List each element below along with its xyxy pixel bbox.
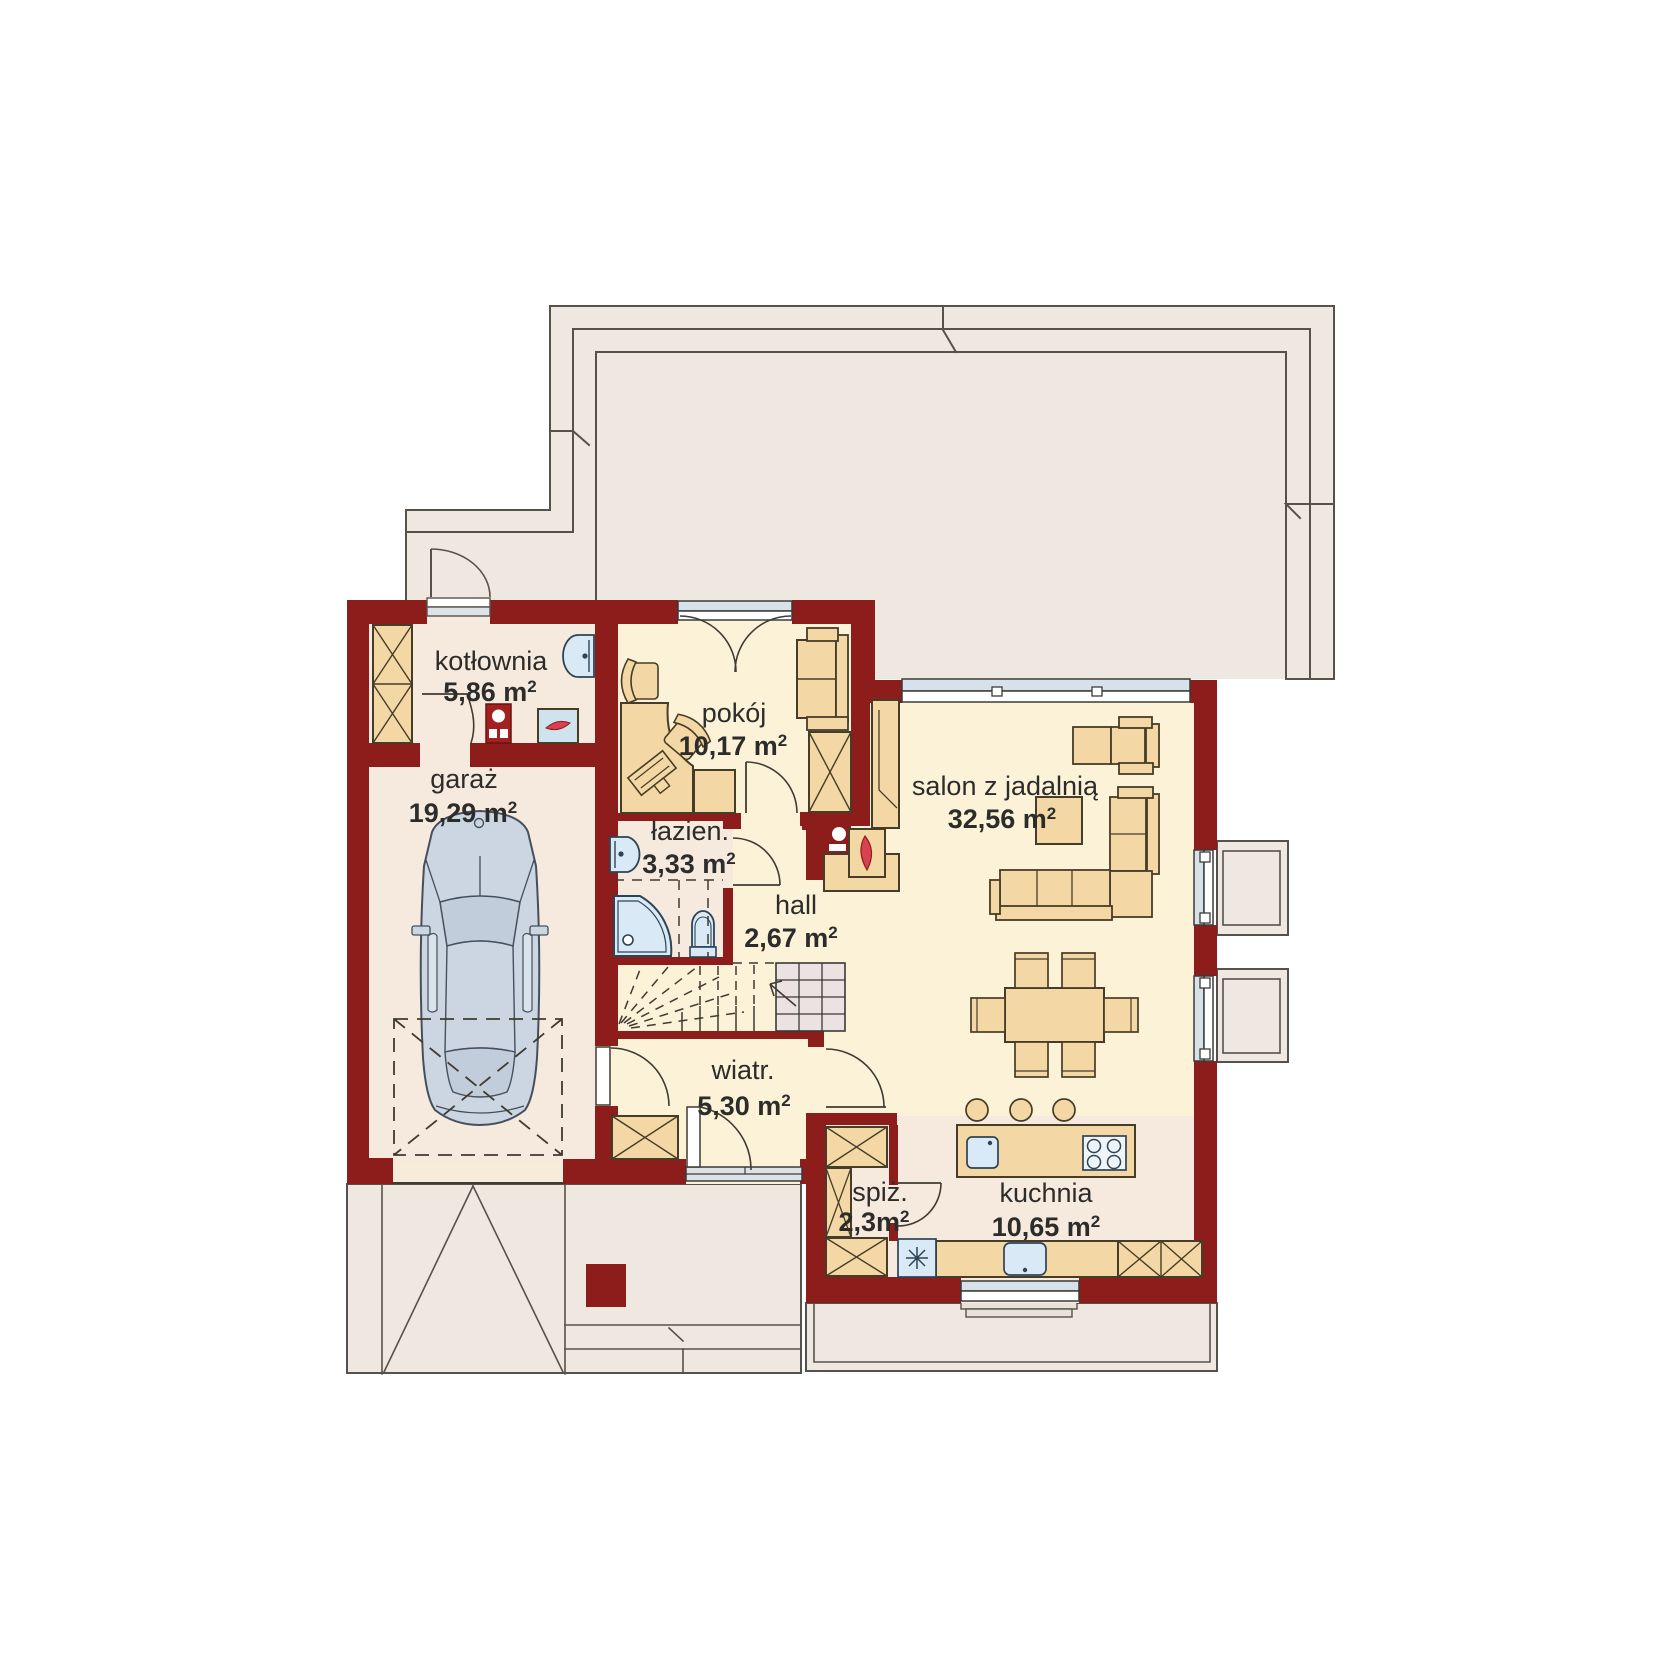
svg-text:kuchnia: kuchnia (999, 1178, 1093, 1208)
svg-text:spiż.: spiż. (852, 1177, 908, 1207)
svg-text:2,67 m2: 2,67 m2 (744, 923, 838, 953)
svg-text:wiatr.: wiatr. (710, 1055, 774, 1085)
svg-text:10,65 m2: 10,65 m2 (992, 1212, 1101, 1242)
svg-text:kotłownia: kotłownia (435, 646, 549, 676)
svg-text:19,29 m2: 19,29 m2 (409, 798, 518, 828)
svg-text:pokój: pokój (702, 698, 767, 728)
svg-text:5,86 m2: 5,86 m2 (443, 677, 537, 707)
svg-text:łazien.: łazien. (651, 816, 729, 846)
svg-text:garaż: garaż (430, 764, 498, 794)
svg-text:salon z jadalnią: salon z jadalnią (912, 771, 1099, 801)
svg-text:2,3m2: 2,3m2 (838, 1207, 909, 1237)
svg-text:hall: hall (775, 890, 817, 920)
svg-text:3,33 m2: 3,33 m2 (642, 849, 736, 879)
svg-text:5,30 m2: 5,30 m2 (697, 1091, 791, 1121)
svg-text:32,56 m2: 32,56 m2 (948, 804, 1057, 834)
svg-text:10,17 m2: 10,17 m2 (679, 731, 788, 761)
